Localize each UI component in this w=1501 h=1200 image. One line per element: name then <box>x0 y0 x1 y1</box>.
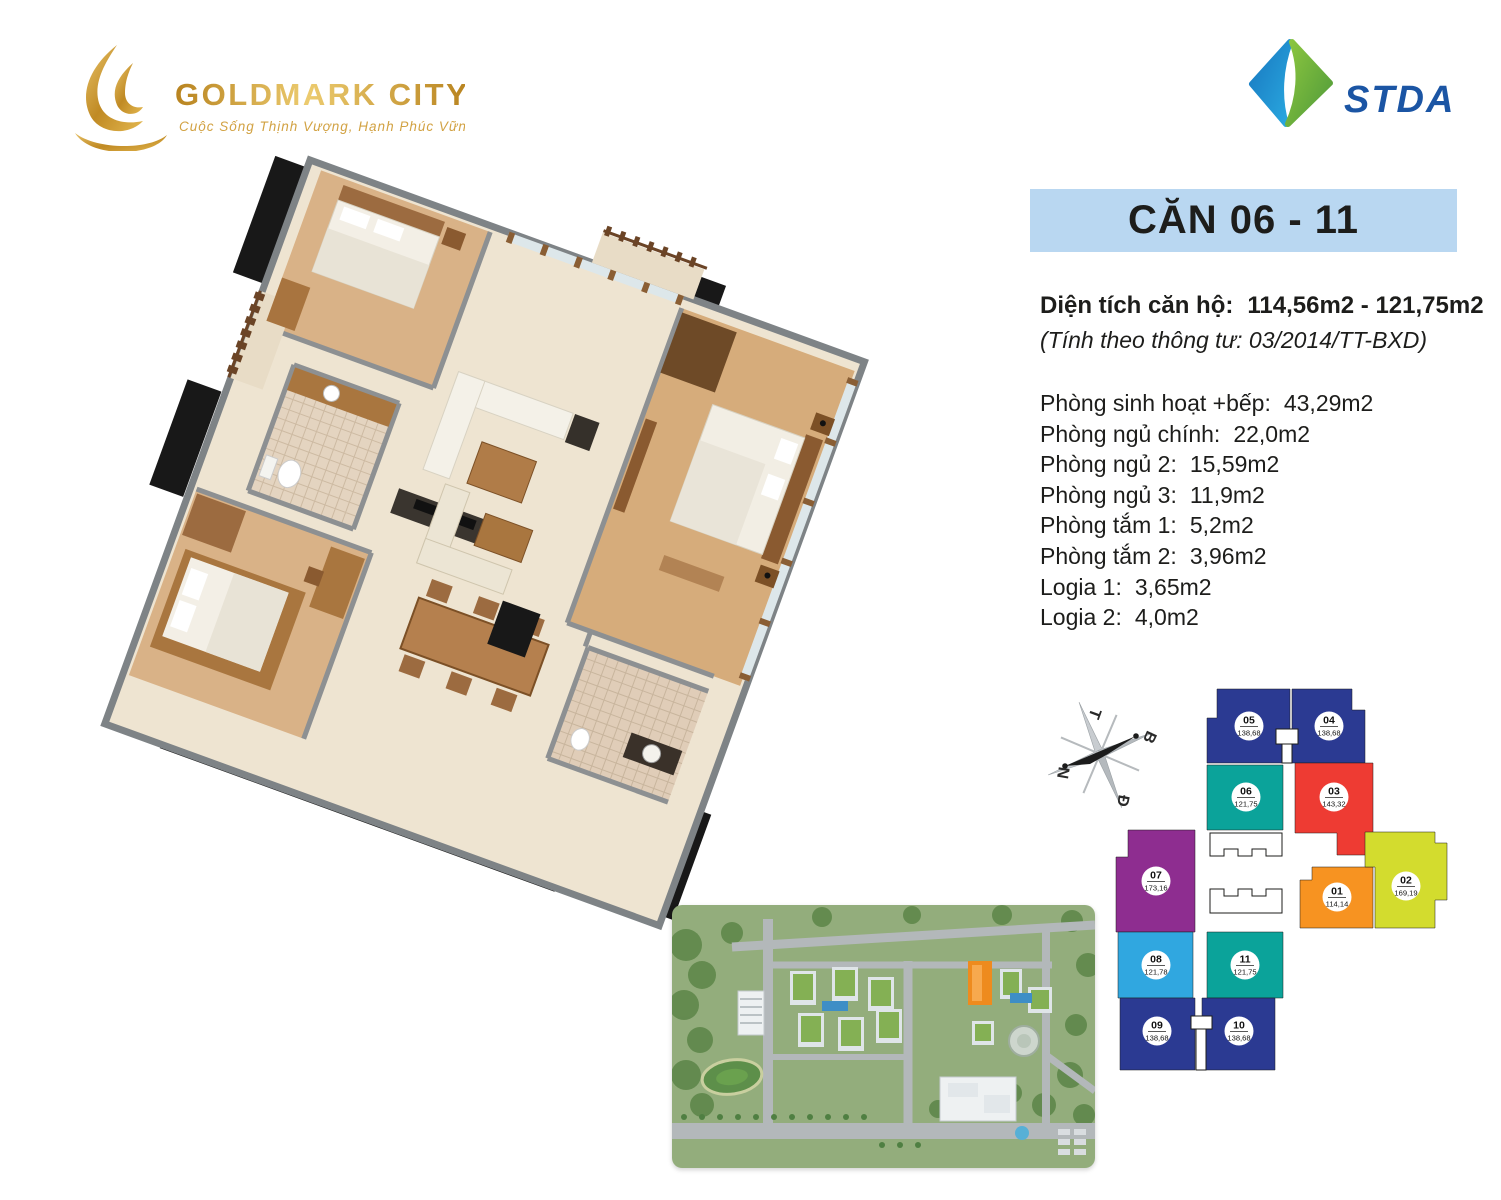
room-value: 3,96m2 <box>1190 543 1267 569</box>
room-label: Phòng ngủ 3: <box>1040 482 1177 508</box>
floorplate-unit-05: 05 138,68 <box>1207 689 1290 763</box>
svg-text:05: 05 <box>1243 715 1255 727</box>
floorplate-unit-07: 07 173,16 <box>1116 830 1195 932</box>
svg-text:114,14: 114,14 <box>1326 900 1349 909</box>
area-label: Diện tích căn hộ: <box>1040 292 1233 319</box>
svg-text:03: 03 <box>1328 786 1340 798</box>
room-row: Phòng sinh hoạt +bếp:43,29m2 <box>1040 388 1470 419</box>
svg-text:138,68: 138,68 <box>1145 1034 1168 1043</box>
room-row: Phòng ngủ 2:15,59m2 <box>1040 449 1470 480</box>
svg-text:169,19: 169,19 <box>1394 889 1417 898</box>
pond <box>1015 1126 1029 1140</box>
room-row: Logia 1:3,65m2 <box>1040 572 1470 603</box>
svg-text:09: 09 <box>1151 1020 1163 1032</box>
svg-text:143,32: 143,32 <box>1322 800 1345 809</box>
room-label: Phòng ngủ 2: <box>1040 451 1177 477</box>
area-note: (Tính theo thông tư: 03/2014/TT-BXD) <box>1040 327 1470 354</box>
room-value: 22,0m2 <box>1233 421 1310 447</box>
site-plan-image <box>672 905 1095 1168</box>
floorplate-unit-10: 10 138,68 <box>1202 998 1275 1070</box>
goldmark-wordmark: GOLDMARK CITY <box>175 77 465 112</box>
stda-wordmark: STDA <box>1344 79 1455 121</box>
svg-text:173,16: 173,16 <box>1144 884 1167 893</box>
floorplate-unit-11: 11 121,75 <box>1207 932 1283 998</box>
svg-text:138,68: 138,68 <box>1237 729 1260 738</box>
svg-text:04: 04 <box>1323 715 1335 727</box>
room-value: 43,29m2 <box>1284 390 1374 416</box>
pool <box>822 1001 848 1011</box>
room-value: 15,59m2 <box>1190 451 1280 477</box>
unit-title: CĂN 06 - 11 <box>1128 198 1359 243</box>
room-label: Phòng tắm 1: <box>1040 512 1177 538</box>
floorplate-unit-02: 02 169,19 <box>1365 832 1447 928</box>
floorplate-unit-04: 04 138,68 <box>1292 689 1365 763</box>
unit-title-band: CĂN 06 - 11 <box>1030 189 1457 252</box>
svg-text:07: 07 <box>1150 870 1162 882</box>
svg-text:01: 01 <box>1331 886 1343 898</box>
stda-diamond-icon <box>1252 42 1330 124</box>
room-value: 11,9m2 <box>1190 482 1265 508</box>
room-label: Logia 1: <box>1040 574 1122 600</box>
room-row: Phòng tắm 2:3,96m2 <box>1040 541 1470 572</box>
svg-text:121,75: 121,75 <box>1234 800 1257 809</box>
stda-logo: STDA <box>1246 36 1466 131</box>
room-row: Phòng ngủ 3:11,9m2 <box>1040 480 1470 511</box>
site-plan <box>672 905 1095 1168</box>
room-label: Phòng sinh hoạt +bếp: <box>1040 390 1271 416</box>
room-area-list: Phòng sinh hoạt +bếp:43,29m2 Phòng ngủ c… <box>1040 388 1470 633</box>
svg-text:121,75: 121,75 <box>1233 968 1256 977</box>
room-label: Phòng ngủ chính: <box>1040 421 1220 447</box>
room-row: Logia 2:4,0m2 <box>1040 602 1470 633</box>
svg-text:11: 11 <box>1239 954 1250 966</box>
room-label: Phòng tắm 2: <box>1040 543 1177 569</box>
floorplate-unit-06: 06 121,75 <box>1207 765 1283 830</box>
room-row: Phòng tắm 1:5,2m2 <box>1040 510 1470 541</box>
floorplate-unit-01: 01 114,14 <box>1300 867 1373 928</box>
floorplate-unit-08: 08 121,78 <box>1118 932 1193 998</box>
svg-text:138,68: 138,68 <box>1227 1034 1250 1043</box>
area-value: 114,56m2 - 121,75m2 <box>1247 292 1483 319</box>
svg-text:08: 08 <box>1150 954 1162 966</box>
compass-label-n: N <box>1053 766 1072 780</box>
room-label: Logia 2: <box>1040 604 1122 630</box>
room-value: 5,2m2 <box>1190 512 1254 538</box>
brochure-page: GOLDMARK CITY Cuộc Sống Thịnh Vượng, Hạn… <box>0 0 1501 1200</box>
floorplate-unit-09: 09 138,68 <box>1120 998 1195 1070</box>
svg-text:02: 02 <box>1400 875 1412 887</box>
retail-building <box>940 1077 1016 1121</box>
room-value: 3,65m2 <box>1135 574 1212 600</box>
room-row: Phòng ngủ chính:22,0m2 <box>1040 419 1470 450</box>
room-value: 4,0m2 <box>1135 604 1199 630</box>
svg-text:10: 10 <box>1233 1020 1245 1032</box>
floorplate-keyplan: 05 138,68 04 138,68 06 121,75 03 143,32 <box>1110 682 1455 1077</box>
svg-text:138,68: 138,68 <box>1317 729 1340 738</box>
apartment-area-line: Diện tích căn hộ:114,56m2 - 121,75m2 <box>1040 292 1470 320</box>
floorplan-3d <box>0 120 1000 1020</box>
svg-text:06: 06 <box>1240 786 1252 798</box>
svg-text:121,78: 121,78 <box>1144 968 1167 977</box>
floorplate-unit-03: 03 143,32 <box>1295 763 1373 855</box>
